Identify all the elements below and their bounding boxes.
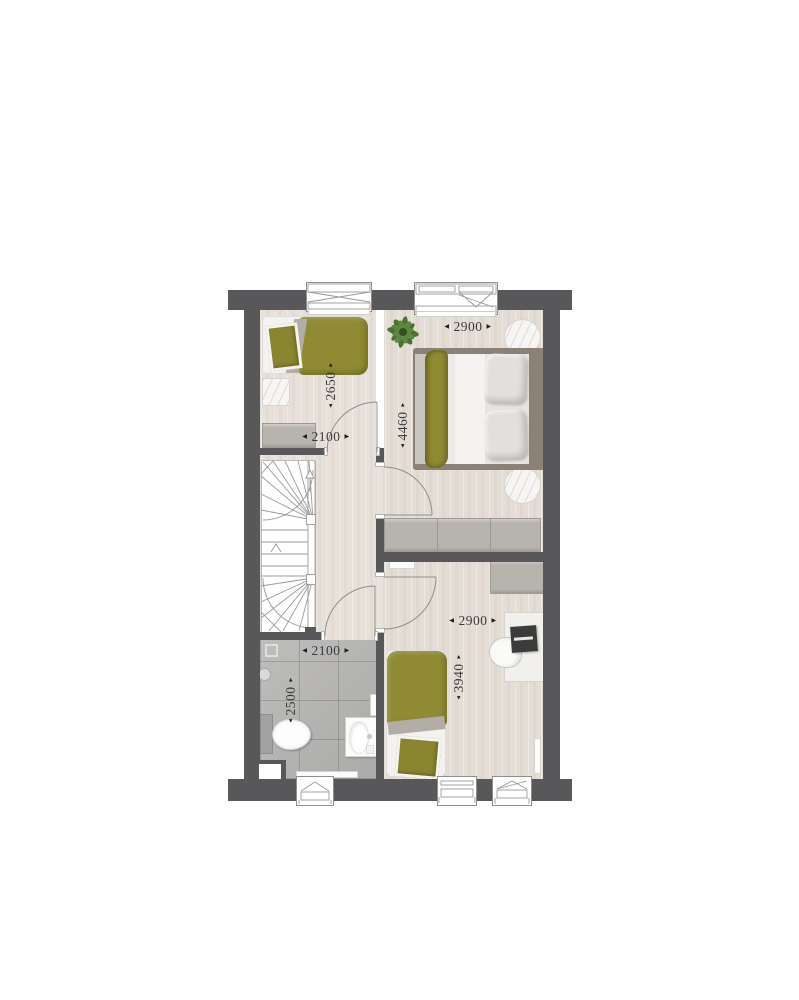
dim-bathroom-width: ◀ 2100 ▶ (302, 643, 349, 659)
bedroom2-window-left (437, 776, 477, 806)
duct-niche (259, 764, 281, 779)
arrow-left-icon: ◀ (302, 434, 307, 440)
dim-bedroom1-width: ◀ 2100 ▶ (302, 429, 349, 445)
bedroom1-side-table (262, 378, 290, 406)
arrow-down-icon: ▼ (400, 444, 406, 450)
arrow-right-icon: ▶ (487, 324, 492, 330)
arrow-right-icon: ▶ (345, 648, 350, 654)
door-jamb (376, 447, 380, 456)
master-side-table-bottom (504, 467, 541, 504)
washbasin (345, 717, 377, 757)
bedroom2-single-bed (386, 650, 446, 777)
dim-value: 3940 (451, 664, 467, 693)
dim-value: 4460 (395, 412, 411, 441)
dim-master-depth: ▲ 4460 ▼ (395, 403, 411, 450)
bedroom1-window (306, 282, 372, 312)
dim-value: 2900 (454, 319, 483, 335)
laptop-icon (510, 625, 538, 653)
dim-value: 2100 (312, 429, 341, 445)
bedroom1-pillow (265, 322, 302, 372)
bathroom-north-wall (260, 632, 325, 640)
arrow-right-icon: ▶ (492, 618, 497, 624)
door-jamb (375, 572, 385, 577)
bedroom2-cabinet (490, 560, 546, 594)
arrow-right-icon: ▶ (345, 434, 350, 440)
arrow-up-icon: ▲ (400, 403, 406, 409)
floor-plan: ◀ 2100 ▶ ▲ 2650 ▼ ◀ 2900 ▶ ▲ 4460 ▼ ◀ 21… (0, 0, 799, 1000)
exterior-wall-top (228, 290, 572, 310)
window-glyph (415, 283, 497, 314)
master-bed-olive-throw (425, 350, 448, 468)
dim-value: 2650 (323, 372, 339, 401)
arrow-up-icon: ▲ (328, 363, 334, 369)
bedroom2-wall-shelf (389, 561, 415, 569)
staircase (261, 460, 316, 634)
dim-value: 2100 (312, 643, 341, 659)
master-wardrobe (384, 518, 541, 552)
wardrobe-divider (437, 519, 438, 551)
master-double-bed (413, 348, 545, 470)
arrow-down-icon: ▼ (456, 696, 462, 702)
shower-drain-icon (265, 644, 278, 657)
spine-wall-lower (376, 630, 384, 779)
bedroom2-duvet (387, 651, 447, 726)
arrow-up-icon: ▲ (288, 678, 294, 684)
arrow-down-icon: ▼ (328, 404, 334, 410)
dim-bedroom1-depth: ▲ 2650 ▼ (323, 363, 339, 410)
arrow-up-icon: ▲ (456, 655, 462, 661)
master-bed-pillow-bottom (484, 409, 528, 460)
bedroom2-window-right (492, 776, 532, 806)
washbasin-tap-icon (367, 734, 372, 739)
window-glyph (297, 777, 333, 805)
door-jamb (321, 631, 325, 641)
dim-bedroom2-depth: ▲ 3940 ▼ (451, 655, 467, 702)
arrow-down-icon: ▼ (288, 719, 294, 725)
window-glyph (307, 283, 371, 311)
arrow-left-icon: ◀ (444, 324, 449, 330)
door-jamb (375, 462, 385, 467)
master-bedroom2-divider-wall (384, 552, 543, 562)
dim-bathroom-depth: ▲ 2500 ▼ (283, 678, 299, 725)
window-sill (308, 309, 370, 315)
bathroom-window (296, 776, 334, 806)
dim-value: 2500 (283, 687, 299, 716)
spine-wall-middle (376, 515, 384, 577)
arrow-left-icon: ◀ (449, 618, 454, 624)
bedroom1-south-wall (260, 448, 327, 455)
door-jamb (374, 631, 378, 641)
dim-bedroom2-width: ◀ 2900 ▶ (449, 613, 496, 629)
bedroom2-pillow (394, 735, 441, 780)
dim-value: 2900 (459, 613, 488, 629)
bedroom1-single-bed (262, 316, 367, 374)
exterior-wall-left (244, 310, 260, 779)
door-jamb (375, 514, 385, 519)
bedroom2-radiator (534, 738, 541, 774)
door-jamb (324, 447, 328, 456)
window-sill (416, 311, 496, 317)
arrow-left-icon: ◀ (302, 648, 307, 654)
exterior-wall-right (543, 310, 560, 779)
bathroom-floor (260, 640, 376, 779)
dim-master-width: ◀ 2900 ▶ (444, 319, 491, 335)
washbasin-accessory (366, 745, 374, 754)
window-glyph (493, 777, 531, 805)
master-bed-pillow-top (484, 353, 528, 404)
wardrobe-divider (490, 519, 491, 551)
window-glyph (438, 777, 476, 805)
